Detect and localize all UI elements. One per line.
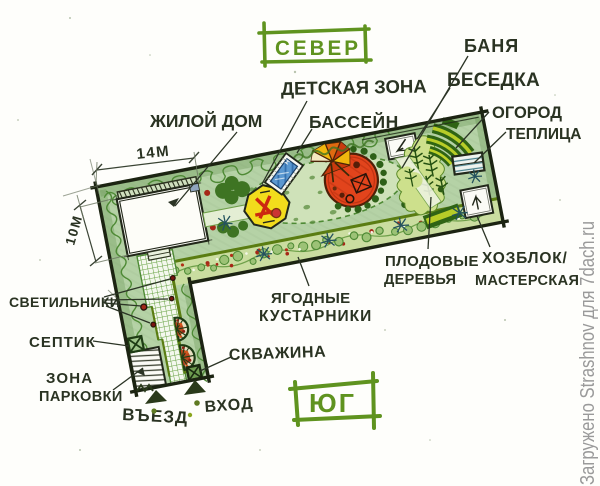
svg-text:бассейн: бассейн: [309, 111, 399, 132]
svg-text:беседка: беседка: [447, 70, 540, 91]
svg-text:септик: септик: [29, 334, 96, 351]
svg-text:ягодные: ягодные: [271, 290, 351, 307]
svg-text:светильники: светильники: [9, 294, 120, 310]
svg-text:14м: 14м: [136, 143, 171, 163]
svg-text:зона: зона: [46, 370, 93, 387]
svg-text:деревья: деревья: [384, 272, 456, 288]
svg-text:кустарники: кустарники: [259, 308, 372, 325]
svg-text:плодовые: плодовые: [385, 253, 479, 270]
svg-text:ЮГ: ЮГ: [309, 388, 356, 418]
svg-text:Загружено Strashnov для 7dach.: Загружено Strashnov для 7dach.ru: [577, 221, 599, 485]
svg-text:въезд: въезд: [122, 405, 189, 427]
svg-text:скважина: скважина: [229, 344, 327, 364]
svg-text:жилой дом: жилой дом: [149, 110, 262, 131]
svg-text:вход: вход: [204, 396, 254, 416]
svg-text:парковки: парковки: [39, 389, 123, 405]
svg-text:детская зона: детская зона: [281, 75, 427, 99]
svg-text:мастерская: мастерская: [475, 273, 579, 289]
svg-text:баня: баня: [464, 36, 519, 56]
svg-text:теплица: теплица: [506, 126, 581, 143]
svg-text:огород: огород: [492, 104, 562, 122]
svg-text:СЕВЕР: СЕВЕР: [275, 37, 361, 60]
svg-text:хозблок/: хозблок/: [482, 250, 568, 267]
